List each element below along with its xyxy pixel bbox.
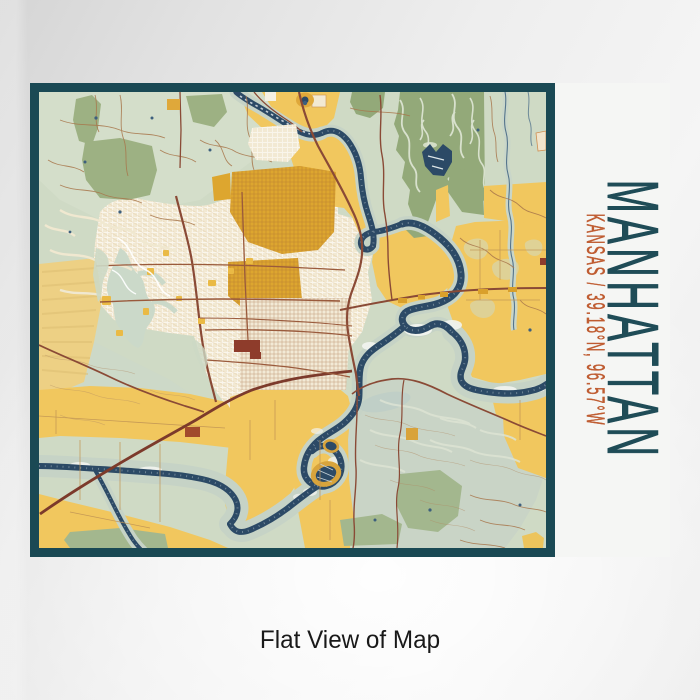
svg-text:KANSAS / 39.18°N, 96.57°W: KANSAS / 39.18°N, 96.57°W xyxy=(581,214,609,427)
